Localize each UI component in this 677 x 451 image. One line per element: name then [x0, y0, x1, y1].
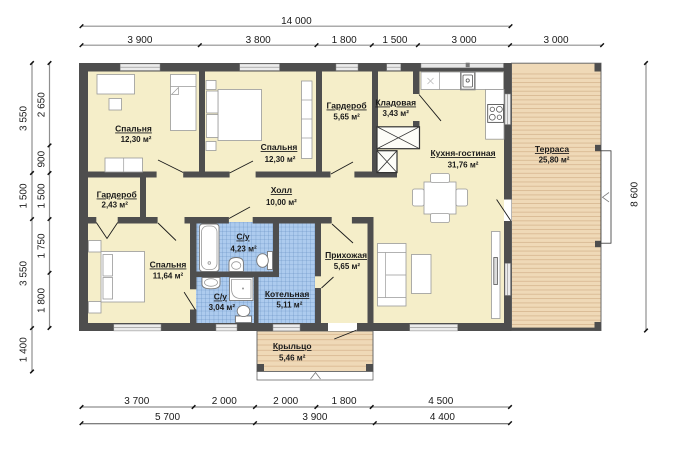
svg-text:3 000: 3 000 [451, 35, 476, 46]
svg-text:2 650: 2 650 [36, 92, 47, 117]
svg-text:Спальня: Спальня [115, 124, 152, 134]
svg-text:3 900: 3 900 [302, 412, 327, 423]
svg-text:Гардероб: Гардероб [327, 101, 367, 111]
svg-text:3 550: 3 550 [19, 106, 30, 131]
svg-text:С/у: С/у [214, 292, 228, 302]
svg-text:1 500: 1 500 [19, 183, 30, 208]
svg-text:Спальня: Спальня [261, 142, 298, 152]
svg-text:3,04 м²: 3,04 м² [209, 303, 236, 312]
svg-text:11,64 м²: 11,64 м² [153, 272, 184, 281]
svg-text:10,00 м²: 10,00 м² [266, 198, 297, 207]
svg-text:Котельная: Котельная [265, 289, 310, 299]
svg-text:5,11 м²: 5,11 м² [276, 301, 302, 310]
svg-text:1 400: 1 400 [19, 337, 30, 362]
svg-text:3,43 м²: 3,43 м² [383, 109, 410, 118]
svg-text:2,43 м²: 2,43 м² [102, 201, 129, 210]
svg-text:С/у: С/у [236, 232, 250, 242]
svg-text:Прихожая: Прихожая [325, 250, 367, 260]
svg-text:8 600: 8 600 [630, 181, 641, 206]
svg-text:900: 900 [36, 150, 47, 167]
svg-text:25,80 м²: 25,80 м² [539, 156, 570, 165]
svg-text:Кладовая: Кладовая [375, 98, 416, 108]
svg-text:31,76 м²: 31,76 м² [448, 161, 479, 170]
svg-text:Гардероб: Гардероб [97, 190, 137, 200]
svg-text:3 700: 3 700 [124, 396, 149, 407]
svg-text:Спальня: Спальня [150, 260, 187, 270]
svg-text:2 000: 2 000 [212, 396, 237, 407]
svg-text:3 550: 3 550 [19, 261, 30, 286]
svg-text:12,30 м²: 12,30 м² [121, 135, 152, 144]
svg-text:Холл: Холл [271, 185, 292, 195]
svg-text:3 900: 3 900 [127, 35, 152, 46]
svg-text:4 400: 4 400 [430, 412, 455, 423]
svg-text:Терраса: Терраса [535, 144, 569, 154]
svg-text:1 750: 1 750 [36, 233, 47, 258]
svg-text:3 000: 3 000 [543, 35, 568, 46]
svg-text:2 000: 2 000 [273, 396, 298, 407]
svg-text:1 500: 1 500 [382, 35, 407, 46]
svg-text:5,65 м²: 5,65 м² [333, 113, 360, 122]
svg-text:14 000: 14 000 [281, 16, 312, 27]
svg-text:1 800: 1 800 [36, 288, 47, 313]
svg-text:4,23 м²: 4,23 м² [230, 245, 257, 254]
svg-text:1 800: 1 800 [332, 35, 357, 46]
svg-text:5 700: 5 700 [155, 412, 180, 423]
svg-text:5,65 м²: 5,65 м² [334, 262, 361, 271]
svg-text:1 500: 1 500 [36, 183, 47, 208]
svg-text:3 800: 3 800 [246, 35, 271, 46]
svg-text:5,46 м²: 5,46 м² [279, 354, 306, 363]
svg-text:4 500: 4 500 [428, 396, 453, 407]
svg-text:Кухня-гостиная: Кухня-гостиная [430, 148, 495, 158]
svg-text:Крыльцо: Крыльцо [273, 341, 312, 351]
svg-text:12,30 м²: 12,30 м² [265, 155, 296, 164]
svg-text:1 800: 1 800 [331, 396, 356, 407]
